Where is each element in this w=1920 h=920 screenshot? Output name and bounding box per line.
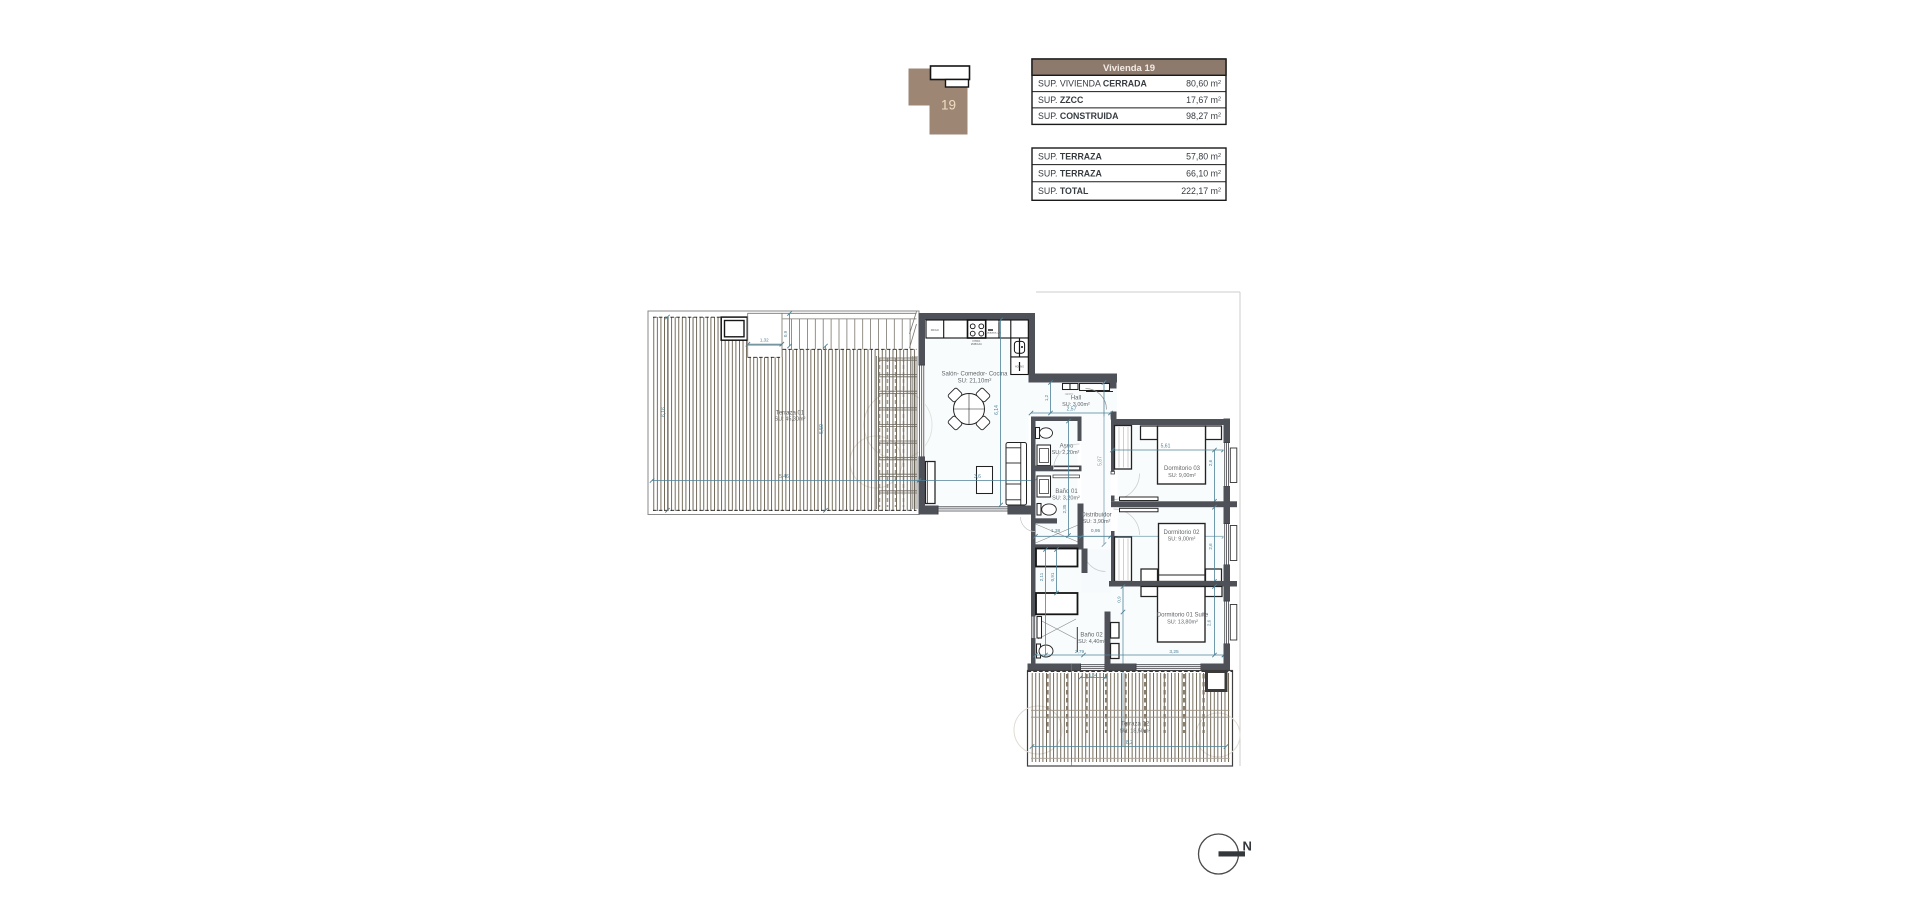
svg-text:2,11: 2,11: [1039, 572, 1044, 581]
svg-text:Salón- Comedor- Cocina: Salón- Comedor- Cocina: [941, 372, 1008, 378]
svg-text:Vivienda 19: Vivienda 19: [1103, 63, 1155, 74]
svg-text:SUP. TERRAZA: SUP. TERRAZA: [1038, 152, 1103, 162]
svg-text:Baño 01: Baño 01: [1055, 489, 1078, 495]
svg-text:SU: 9,00m²: SU: 9,00m²: [1168, 473, 1196, 479]
svg-text:0,95: 0,95: [1091, 528, 1101, 534]
svg-text:SUP. VIVIENDA CERRADA: SUP. VIVIENDA CERRADA: [1038, 79, 1148, 89]
svg-text:SU: 3,90m²: SU: 3,90m²: [1083, 519, 1111, 525]
svg-text:SU: 45,30m²: SU: 45,30m²: [775, 417, 806, 423]
svg-text:80,60 m2: 80,60 m2: [1186, 79, 1221, 89]
svg-text:2,6: 2,6: [1208, 543, 1213, 550]
svg-text:N: N: [1243, 839, 1252, 854]
svg-text:Distribuidor: Distribuidor: [1081, 513, 1111, 519]
svg-text:SU: 21,10m²: SU: 21,10m²: [958, 379, 992, 385]
svg-text:222,17 m2: 222,17 m2: [1181, 186, 1221, 196]
svg-text:1,32: 1,32: [760, 338, 769, 343]
svg-text:5,59: 5,59: [819, 424, 825, 434]
svg-text:2,57: 2,57: [1067, 407, 1077, 413]
svg-text:2,6: 2,6: [1208, 459, 1213, 466]
svg-text:SU: 3,20m²: SU: 3,20m²: [1052, 496, 1080, 502]
svg-text:Dormitorio 01 Suite: Dormitorio 01 Suite: [1157, 613, 1209, 619]
svg-text:1,64: 1,64: [1089, 672, 1098, 677]
svg-text:ØUBICAC: ØUBICAC: [971, 343, 982, 346]
svg-text:SUP. CONSTRUIDA: SUP. CONSTRUIDA: [1038, 111, 1119, 121]
svg-text:SUP. TERRAZA: SUP. TERRAZA: [1038, 168, 1103, 178]
svg-text:SU: 13,80m²: SU: 13,80m²: [1167, 620, 1198, 626]
svg-text:SU: 9,00m²: SU: 9,00m²: [1168, 537, 1196, 543]
svg-text:SUP. TOTAL: SUP. TOTAL: [1038, 186, 1089, 196]
svg-text:2,6: 2,6: [1207, 619, 1212, 626]
svg-text:17,67 m2: 17,67 m2: [1186, 95, 1221, 105]
svg-text:57,80 m2: 57,80 m2: [1186, 152, 1221, 162]
svg-text:0,91: 0,91: [1050, 572, 1055, 581]
svg-text:98,27 m2: 98,27 m2: [1186, 111, 1221, 121]
svg-text:Hall: Hall: [1071, 396, 1081, 402]
svg-text:0,9: 0,9: [783, 330, 788, 337]
svg-text:3,25: 3,25: [1169, 649, 1179, 655]
svg-text:LAVAVAJILLAS: LAVAVAJILLAS: [986, 332, 1001, 335]
svg-text:Aseo: Aseo: [1060, 444, 1074, 450]
svg-text:2,35: 2,35: [1062, 504, 1067, 513]
svg-text:FRIGO: FRIGO: [931, 328, 939, 332]
svg-text:66,10 m2: 66,10 m2: [1186, 168, 1221, 178]
svg-text:SU: 2,20m²: SU: 2,20m²: [1052, 450, 1080, 456]
svg-text:2,79: 2,79: [1075, 649, 1085, 655]
svg-text:6,14: 6,14: [994, 405, 1000, 415]
svg-text:SU: 18,50m²: SU: 18,50m²: [1120, 729, 1151, 735]
svg-text:8,2: 8,2: [1126, 740, 1133, 746]
svg-text:Dormitorio 02: Dormitorio 02: [1163, 530, 1200, 536]
svg-text:1,2: 1,2: [1044, 394, 1049, 401]
svg-text:6,16: 6,16: [661, 407, 667, 417]
svg-text:Baño 02: Baño 02: [1080, 633, 1103, 639]
svg-text:5,61: 5,61: [1161, 444, 1171, 450]
svg-text:Terraza 02: Terraza 02: [1121, 722, 1150, 728]
svg-text:3,6: 3,6: [974, 474, 981, 480]
svg-text:SUP. ZZCC: SUP. ZZCC: [1038, 95, 1084, 105]
svg-text:19: 19: [941, 98, 956, 113]
svg-text:Dormitorio 03: Dormitorio 03: [1164, 466, 1201, 472]
svg-text:SU: 4,40m²: SU: 4,40m²: [1078, 639, 1106, 645]
svg-text:HORNO: HORNO: [1015, 366, 1024, 369]
svg-text:1,38: 1,38: [1051, 528, 1061, 534]
svg-text:0,9: 0,9: [1117, 596, 1122, 603]
svg-text:5,46: 5,46: [779, 474, 789, 480]
